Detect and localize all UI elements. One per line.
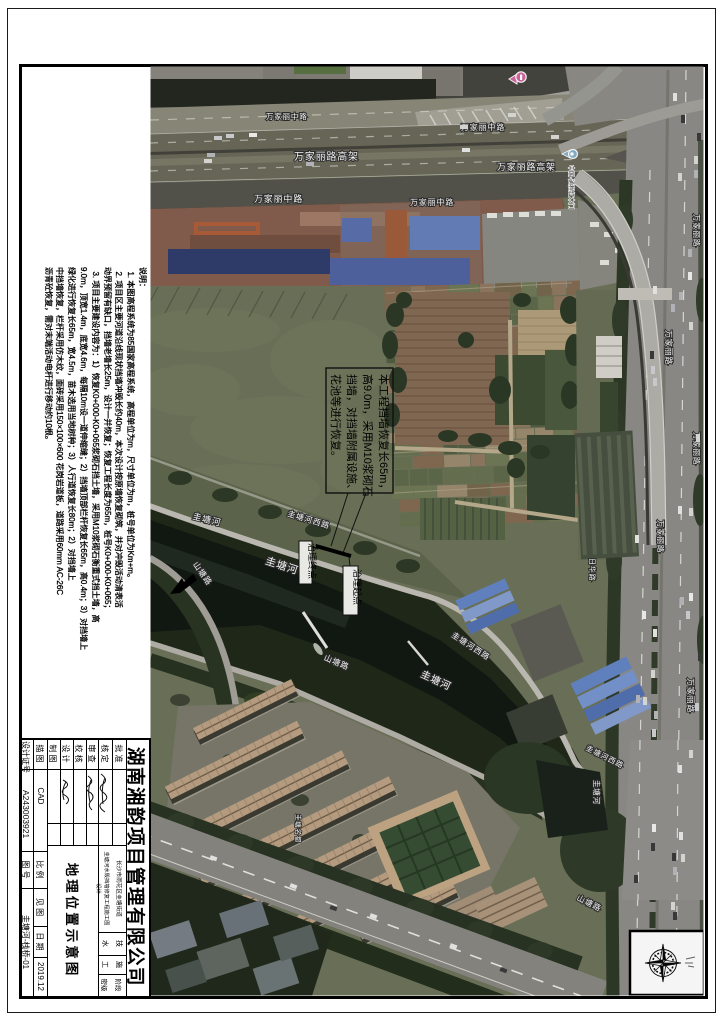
svg-text:万家丽路: 万家丽路 bbox=[664, 330, 674, 365]
svg-text:万家丽路: 万家丽路 bbox=[686, 678, 696, 713]
svg-text:万家丽中路: 万家丽中路 bbox=[266, 111, 308, 121]
svg-text:本工程挡墙恢复长65m，: 本工程挡墙恢复长65m， bbox=[377, 374, 391, 494]
svg-text:圭塘名都: 圭塘名都 bbox=[294, 814, 303, 843]
svg-text:治理终点: 治理终点 bbox=[307, 543, 318, 579]
svg-text:万家丽中路: 万家丽中路 bbox=[410, 197, 454, 207]
svg-text:万家丽中路: 万家丽中路 bbox=[254, 193, 303, 204]
svg-text:治理起点: 治理起点 bbox=[352, 569, 363, 605]
svg-text:中国·通程红木门: 中国·通程红木门 bbox=[567, 165, 575, 209]
svg-text:万家丽路高架: 万家丽路高架 bbox=[294, 150, 359, 163]
svg-text:万家丽路: 万家丽路 bbox=[692, 214, 702, 247]
svg-text:日华路: 日华路 bbox=[588, 558, 597, 581]
svg-text:圭塘河: 圭塘河 bbox=[592, 780, 602, 805]
svg-text:高9.0m，采用M10浆砌石: 高9.0m，采用M10浆砌石 bbox=[361, 374, 375, 497]
svg-text:挡墙，对挡墙附属设施、: 挡墙，对挡墙附属设施、 bbox=[345, 374, 359, 495]
svg-text:花池等进行恢复。: 花池等进行恢复。 bbox=[329, 374, 343, 462]
svg-text:万家丽路高架: 万家丽路高架 bbox=[497, 161, 556, 172]
svg-text:万家丽路: 万家丽路 bbox=[656, 520, 666, 553]
